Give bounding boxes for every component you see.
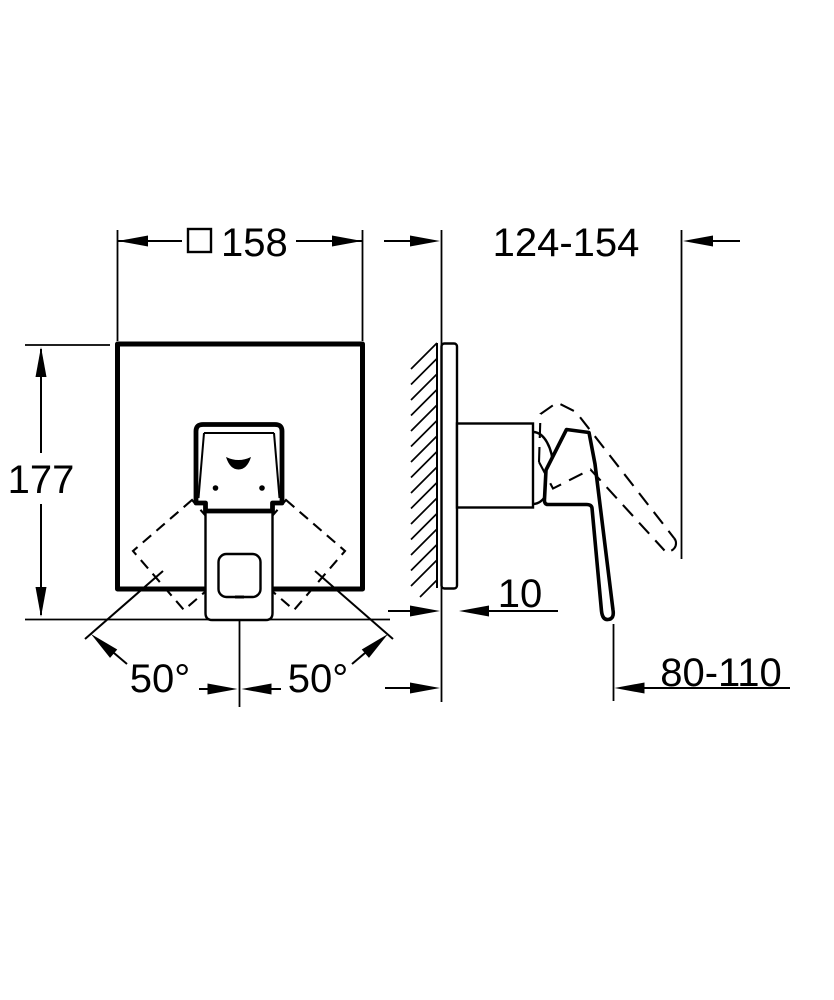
- arrowhead: [459, 606, 489, 617]
- arrowhead: [36, 587, 47, 617]
- arrowhead: [332, 236, 362, 247]
- dimension-front-width: 158: [118, 221, 362, 265]
- dim-front-height-label: 177: [8, 458, 75, 502]
- arrowhead: [242, 684, 272, 695]
- wall-hatching: [411, 343, 437, 597]
- mixer-body-side: [457, 424, 533, 508]
- dim-front-width-label: 158: [221, 221, 288, 265]
- arrowhead: [36, 347, 47, 377]
- arrowhead: [410, 236, 440, 247]
- arrowhead: [208, 684, 238, 695]
- front-view: [85, 344, 393, 639]
- side-view: [411, 343, 676, 620]
- dimension-plate-thickness: 10: [388, 572, 558, 617]
- lever-handle-side: [544, 430, 613, 620]
- arrowhead: [615, 683, 645, 694]
- dim-depth-range-label: 124-154: [493, 221, 640, 265]
- dim-angle-right-label: 50°: [288, 657, 349, 701]
- dim-angle-left-label: 50°: [130, 657, 191, 701]
- mixer-installation-drawing: 158 124-154 177: [0, 0, 834, 1000]
- escutcheon-side: [442, 344, 458, 589]
- dimension-depth-range: 124-154: [384, 221, 740, 265]
- technical-drawing-page: 158 124-154 177: [0, 0, 834, 1000]
- arrowhead: [410, 606, 440, 617]
- dimension-front-height: 177: [8, 347, 75, 617]
- dimension-lever-reach: 80-110: [385, 651, 790, 695]
- handle-screw-dot-right: [259, 485, 265, 491]
- dim-lever-reach-label: 80-110: [660, 651, 782, 695]
- dim-plate-thickness-label: 10: [498, 572, 543, 616]
- arrowhead: [118, 236, 148, 247]
- handle-screw-dot-left: [213, 485, 219, 491]
- arrowhead: [410, 683, 440, 694]
- handle-stem-front: [206, 509, 273, 620]
- square-symbol: [188, 229, 211, 252]
- arrowhead: [683, 236, 713, 247]
